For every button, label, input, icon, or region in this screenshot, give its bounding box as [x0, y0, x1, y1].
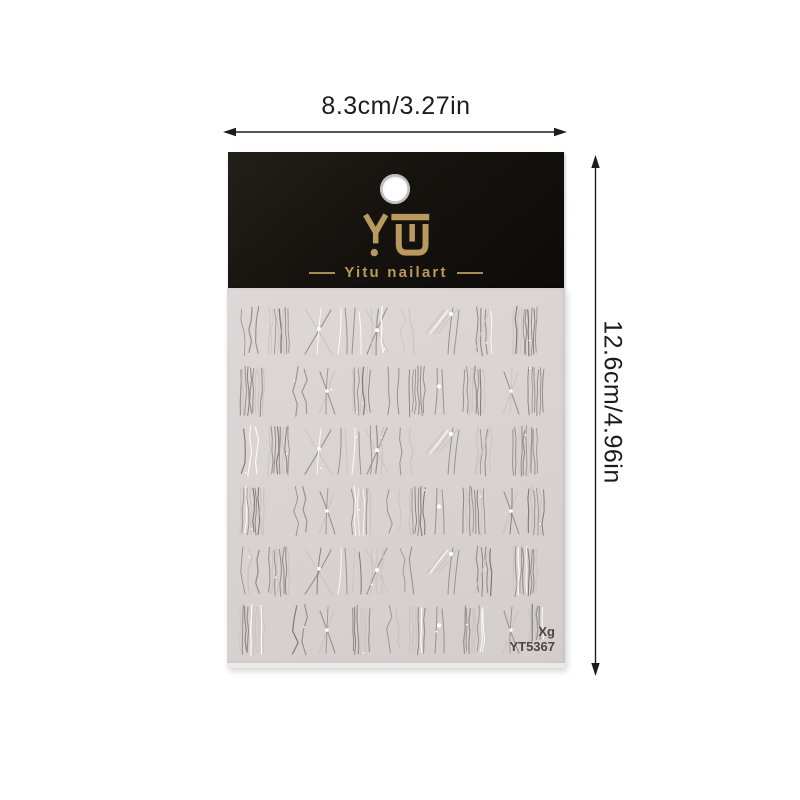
height-dimension-label: 12.6cm/4.96in	[598, 320, 627, 484]
sheet-label: Xg YT5367	[509, 625, 555, 655]
width-dimension-label: 8.3cm/3.27in	[227, 92, 565, 121]
sticker-sheet: Xg YT5367	[227, 288, 565, 668]
product-image-canvas: 8.3cm/3.27in 12.6cm/4.96in Yitu nailart …	[0, 0, 800, 800]
sheet-model-number: YT5367	[509, 640, 555, 655]
brand-dash-right	[457, 272, 483, 274]
brand-logo-icon	[360, 212, 432, 260]
brand-name: Yitu nailart	[344, 264, 447, 281]
hang-hole	[380, 174, 410, 204]
package-header: Yitu nailart	[228, 152, 564, 288]
brand-dash-left	[309, 272, 335, 274]
brand-row: Yitu nailart	[228, 264, 564, 281]
width-dimension-arrow	[223, 128, 567, 136]
sheet-size-code: Xg	[509, 625, 555, 640]
sticker-pattern	[227, 288, 565, 663]
